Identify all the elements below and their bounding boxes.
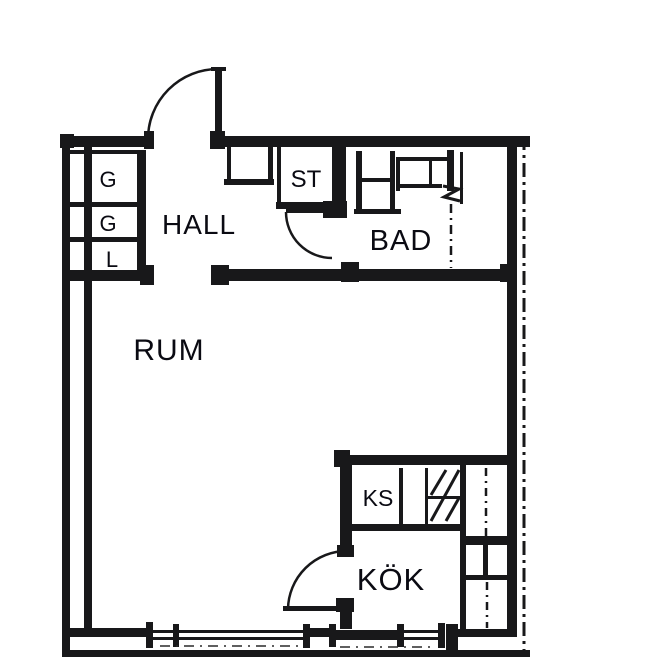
door-swing-arc [148,69,218,139]
label-g1: G [99,167,116,192]
label-hall: HALL [162,209,236,240]
bathroom-fixtures [354,150,463,214]
stove-hatch [431,470,459,521]
break-symbol [443,186,460,201]
label-st: ST [291,166,322,193]
label-l: L [106,247,118,272]
floor-plan: HALL BAD RUM KÖK ST KS G G L [0,0,659,672]
floor-plan-drawing: HALL BAD RUM KÖK ST KS G G L [0,0,659,672]
door-swing-arc [286,212,332,258]
label-bad: BAD [370,225,433,257]
label-ks: KS [363,485,394,511]
room-labels: HALL BAD RUM KÖK ST KS G G L [99,166,432,597]
label-g2: G [99,211,116,236]
label-kok: KÖK [357,562,425,597]
label-rum: RUM [133,334,204,367]
entrance-door [148,67,226,139]
